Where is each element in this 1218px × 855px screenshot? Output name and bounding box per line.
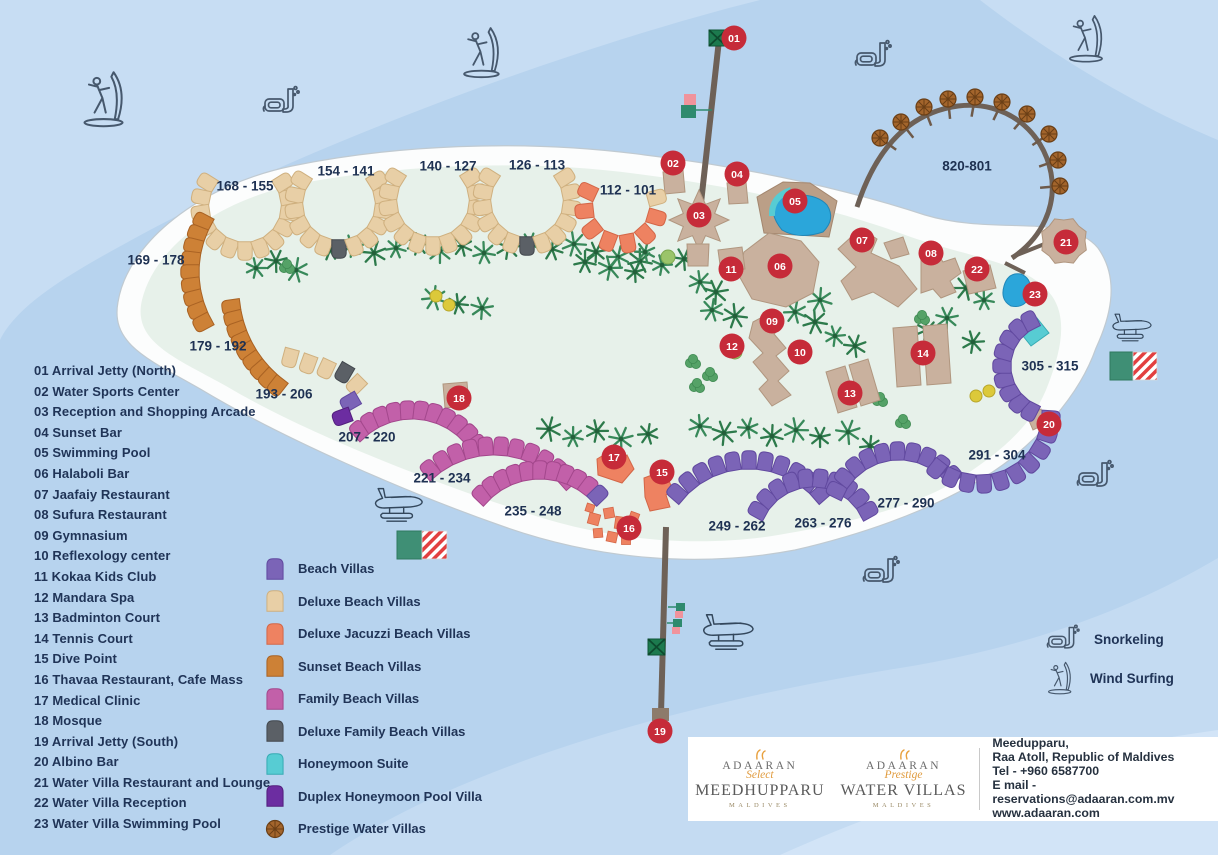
map-marker-number: 04 bbox=[731, 169, 743, 181]
map-marker-01: 01 bbox=[722, 26, 747, 51]
windsurfing-icon bbox=[1046, 660, 1076, 696]
villa-beach bbox=[757, 451, 774, 472]
map-marker-number: 13 bbox=[844, 388, 856, 400]
jetty-mark bbox=[675, 611, 683, 618]
map-marker-14: 14 bbox=[911, 341, 936, 366]
prestige-water-villa bbox=[967, 89, 983, 105]
prestige-water-villa bbox=[872, 130, 888, 146]
prestige-water-villa bbox=[916, 99, 932, 115]
map-marker-number: 18 bbox=[453, 393, 465, 405]
legend-item-honeymoon: Honeymoon Suite bbox=[265, 753, 482, 774]
building-thavaa-restaurant bbox=[587, 512, 600, 525]
villa-jacuzzi bbox=[574, 203, 594, 219]
building-thavaa-restaurant bbox=[606, 531, 618, 543]
villa-family bbox=[493, 437, 509, 456]
villa-legend: Beach VillasDeluxe Beach VillasDeluxe Ja… bbox=[265, 558, 482, 839]
facility-item-11: 11 Kokaa Kids Club bbox=[34, 570, 270, 583]
legend-label: Deluxe Beach Villas bbox=[298, 594, 421, 609]
brand-water-villas: ADAARAN Prestige WATER VILLAS MALDIVES bbox=[832, 749, 976, 809]
legend-label: Duplex Honeymoon Pool Villa bbox=[298, 789, 482, 804]
legend-item-sunset: Sunset Beach Villas bbox=[265, 656, 482, 677]
villa-range-label: 168 - 155 bbox=[216, 179, 274, 194]
villa-beach bbox=[890, 442, 905, 461]
footer-info-box: ADAARAN Select MEEDHUPPARU MALDIVES ADAA… bbox=[688, 737, 1218, 821]
dive-flag-green bbox=[1110, 352, 1133, 380]
facility-item-08: 08 Sufura Restaurant bbox=[34, 508, 270, 521]
villa-range-label: 140 - 127 bbox=[419, 159, 476, 174]
legend-item-duplex: Duplex Honeymoon Pool Villa bbox=[265, 786, 482, 807]
map-marker-number: 01 bbox=[728, 33, 740, 45]
facility-item-22: 22 Water Villa Reception bbox=[34, 796, 270, 809]
prestige-water-villa bbox=[994, 94, 1010, 110]
building-thavaa-restaurant bbox=[603, 507, 615, 519]
address-line: Tel - +960 6587700 bbox=[992, 765, 1218, 779]
map-marker-02: 02 bbox=[661, 151, 686, 176]
legend-item-deluxe: Deluxe Beach Villas bbox=[265, 591, 482, 612]
facility-item-12: 12 Mandara Spa bbox=[34, 591, 270, 604]
prestige-water-villa bbox=[1050, 152, 1066, 168]
facility-item-16: 16 Thavaa Restaurant, Cafe Mass bbox=[34, 673, 270, 686]
resort-map-page: 0102030405060708091011121314151617181920… bbox=[0, 0, 1218, 855]
brand-palm-icon bbox=[752, 749, 768, 760]
facility-item-21: 21 Water Villa Restaurant and Lounge bbox=[34, 776, 270, 789]
legend-label: Deluxe Family Beach Villas bbox=[298, 724, 465, 739]
map-marker-06: 06 bbox=[768, 254, 793, 279]
map-marker-number: 02 bbox=[667, 158, 679, 170]
map-marker-09: 09 bbox=[760, 309, 785, 334]
villa-beach bbox=[742, 451, 756, 469]
villa-swatch bbox=[265, 688, 285, 710]
villa-range-label: 263 - 276 bbox=[794, 516, 852, 531]
jetty-mark bbox=[672, 627, 680, 634]
facility-item-10: 10 Reflexology center bbox=[34, 549, 270, 562]
jetty-mark bbox=[684, 94, 696, 105]
address-line: E mail - reservations@adaaran.com.mv bbox=[992, 779, 1218, 807]
brand-meedhupparu: ADAARAN Select MEEDHUPPARU MALDIVES bbox=[688, 749, 832, 809]
facility-item-13: 13 Badminton Court bbox=[34, 611, 270, 624]
villa-deluxe bbox=[426, 237, 440, 255]
legend-label: Sunset Beach Villas bbox=[298, 659, 421, 674]
legend-item-jacuzzi: Deluxe Jacuzzi Beach Villas bbox=[265, 623, 482, 644]
map-marker-08: 08 bbox=[919, 241, 944, 266]
villa-jacuzzi bbox=[619, 233, 637, 254]
villa-dfamily bbox=[520, 237, 534, 255]
map-marker-10: 10 bbox=[788, 340, 813, 365]
map-marker-19: 19 bbox=[648, 719, 673, 744]
activity-item-windsurf: Wind Surfing bbox=[1046, 663, 1174, 693]
map-marker-04: 04 bbox=[725, 162, 750, 187]
villa-swatch bbox=[265, 655, 285, 677]
map-marker-21: 21 bbox=[1054, 230, 1079, 255]
brand-script: Prestige bbox=[885, 769, 923, 781]
legend-label: Deluxe Jacuzzi Beach Villas bbox=[298, 626, 470, 641]
building-thavaa-restaurant bbox=[593, 528, 603, 538]
brand-main: WATER VILLAS bbox=[841, 782, 967, 800]
villa-range-label: 154 - 141 bbox=[317, 164, 375, 179]
map-marker-20: 20 bbox=[1037, 412, 1062, 437]
legend-label: Prestige Water Villas bbox=[298, 821, 426, 836]
facility-item-01: 01 Arrival Jetty (North) bbox=[34, 364, 270, 377]
villa-range-label: 169 - 178 bbox=[127, 253, 185, 268]
legend-item-dfamily: Deluxe Family Beach Villas bbox=[265, 721, 482, 742]
facility-item-06: 06 Halaboli Bar bbox=[34, 467, 270, 480]
map-marker-number: 11 bbox=[725, 264, 736, 276]
map-marker-number: 12 bbox=[726, 341, 738, 353]
legend-label: Family Beach Villas bbox=[298, 691, 419, 706]
facility-item-19: 19 Arrival Jetty (South) bbox=[34, 735, 270, 748]
map-marker-number: 19 bbox=[654, 726, 666, 738]
villa-beach bbox=[724, 451, 741, 472]
map-marker-number: 23 bbox=[1029, 289, 1041, 301]
map-marker-18: 18 bbox=[447, 386, 472, 411]
facility-item-09: 09 Gymnasium bbox=[34, 529, 270, 542]
prestige-water-villa bbox=[1041, 126, 1057, 142]
villa-swatch bbox=[265, 720, 285, 742]
snorkeling-icon bbox=[1046, 623, 1080, 655]
facility-item-18: 18 Mosque bbox=[34, 714, 270, 727]
villa-range-label: 820-801 bbox=[942, 159, 992, 174]
map-marker-number: 10 bbox=[794, 347, 806, 359]
facility-item-07: 07 Jaafaiy Restaurant bbox=[34, 488, 270, 501]
villa-deluxe bbox=[238, 242, 252, 260]
villa-swatch bbox=[265, 558, 285, 580]
facility-item-04: 04 Sunset Bar bbox=[34, 426, 270, 439]
map-marker-17: 17 bbox=[602, 445, 627, 470]
facility-item-03: 03 Reception and Shopping Arcade bbox=[34, 405, 270, 418]
map-marker-number: 16 bbox=[623, 523, 635, 535]
facility-item-15: 15 Dive Point bbox=[34, 652, 270, 665]
prestige-umbrella-swatch bbox=[265, 818, 285, 840]
activity-label: Wind Surfing bbox=[1090, 671, 1174, 686]
facility-item-23: 23 Water Villa Swimming Pool bbox=[34, 817, 270, 830]
facility-item-20: 20 Albino Bar bbox=[34, 755, 270, 768]
yellow-tree bbox=[443, 299, 455, 311]
brand-script: Select bbox=[746, 769, 773, 781]
map-marker-number: 09 bbox=[766, 316, 778, 328]
brand-sub: MALDIVES bbox=[729, 802, 791, 809]
facility-item-02: 02 Water Sports Center bbox=[34, 385, 270, 398]
villa-swatch bbox=[265, 623, 285, 645]
legend-item-beach: Beach Villas bbox=[265, 558, 482, 579]
dive-flag-green bbox=[397, 531, 422, 559]
map-marker-16: 16 bbox=[617, 516, 642, 541]
map-marker-number: 21 bbox=[1060, 237, 1072, 249]
villa-dfamily bbox=[332, 240, 346, 258]
prestige-water-villa bbox=[1052, 178, 1068, 194]
brand-palm-icon bbox=[896, 749, 912, 760]
map-marker-05: 05 bbox=[783, 189, 808, 214]
map-marker-number: 05 bbox=[789, 196, 801, 208]
villa-range-label: 277 - 290 bbox=[877, 496, 934, 511]
villa-range-label: 291 - 304 bbox=[968, 448, 1026, 463]
map-marker-15: 15 bbox=[650, 460, 675, 485]
address-line: www.adaaran.com bbox=[992, 807, 1218, 821]
map-marker-number: 07 bbox=[856, 235, 868, 247]
building-reception-annex bbox=[687, 244, 709, 266]
villa-range-label: 126 - 113 bbox=[509, 158, 566, 173]
dive-flag-striped bbox=[422, 531, 447, 559]
map-marker-22: 22 bbox=[965, 257, 990, 282]
map-marker-12: 12 bbox=[720, 334, 745, 359]
legend-item-prestige: Prestige Water Villas bbox=[265, 818, 482, 839]
map-marker-number: 03 bbox=[693, 210, 705, 222]
activity-item-snorkel: Snorkeling bbox=[1046, 624, 1174, 654]
map-marker-number: 06 bbox=[774, 261, 786, 273]
map-marker-number: 08 bbox=[925, 248, 937, 260]
facility-item-05: 05 Swimming Pool bbox=[34, 446, 270, 459]
brand-sub: MALDIVES bbox=[873, 802, 935, 809]
villa-beach bbox=[976, 474, 991, 493]
footer-divider bbox=[979, 748, 980, 810]
jetty-mark bbox=[681, 105, 696, 118]
prestige-water-villa bbox=[940, 91, 956, 107]
address-line: Raa Atoll, Republic of Maldives bbox=[992, 751, 1218, 765]
legend-label: Beach Villas bbox=[298, 561, 374, 576]
villa-swatch bbox=[265, 785, 285, 807]
resort-address: Meedupparu, Raa Atoll, Republic of Maldi… bbox=[992, 737, 1218, 820]
legend-item-family: Family Beach Villas bbox=[265, 688, 482, 709]
villa-range-label: 112 - 101 bbox=[600, 183, 657, 198]
prestige-water-villa bbox=[893, 114, 909, 130]
map-marker-11: 11 bbox=[719, 257, 744, 282]
map-marker-number: 20 bbox=[1043, 419, 1055, 431]
yellow-tree bbox=[430, 290, 442, 302]
activity-label: Snorkeling bbox=[1094, 632, 1164, 647]
map-marker-07: 07 bbox=[850, 228, 875, 253]
yellow-tree bbox=[983, 385, 995, 397]
villa-swatch bbox=[265, 590, 285, 612]
map-marker-03: 03 bbox=[687, 203, 712, 228]
villa-beach bbox=[958, 472, 975, 493]
facility-item-14: 14 Tennis Court bbox=[34, 632, 270, 645]
villa-swatch bbox=[265, 753, 285, 775]
navigation-mark bbox=[648, 639, 665, 655]
facilities-list: 01 Arrival Jetty (North)02 Water Sports … bbox=[34, 364, 270, 830]
villa-range-label: 179 - 192 bbox=[189, 339, 246, 354]
prestige-water-villa bbox=[1019, 106, 1035, 122]
villa-range-label: 221 - 234 bbox=[413, 471, 471, 486]
light-bush bbox=[661, 250, 675, 264]
map-marker-number: 17 bbox=[608, 452, 620, 464]
map-marker-number: 15 bbox=[656, 467, 668, 479]
villa-range-label: 249 - 262 bbox=[708, 519, 765, 534]
activities-legend: SnorkelingWind Surfing bbox=[1046, 624, 1174, 693]
villa-range-label: 305 - 315 bbox=[1021, 359, 1079, 374]
map-marker-number: 14 bbox=[917, 348, 929, 360]
map-marker-23: 23 bbox=[1023, 282, 1048, 307]
brand-main: MEEDHUPPARU bbox=[695, 782, 825, 800]
map-marker-13: 13 bbox=[838, 381, 863, 406]
villa-range-label: 207 - 220 bbox=[338, 430, 395, 445]
legend-label: Honeymoon Suite bbox=[298, 756, 409, 771]
villa-range-label: 235 - 248 bbox=[504, 504, 562, 519]
dive-flag-striped bbox=[1133, 352, 1157, 380]
map-marker-number: 22 bbox=[971, 264, 983, 276]
yellow-tree bbox=[970, 390, 982, 402]
facility-item-17: 17 Medical Clinic bbox=[34, 694, 270, 707]
address-line: Meedupparu, bbox=[992, 737, 1218, 751]
villa-family bbox=[478, 437, 494, 457]
villa-beach bbox=[797, 468, 813, 488]
